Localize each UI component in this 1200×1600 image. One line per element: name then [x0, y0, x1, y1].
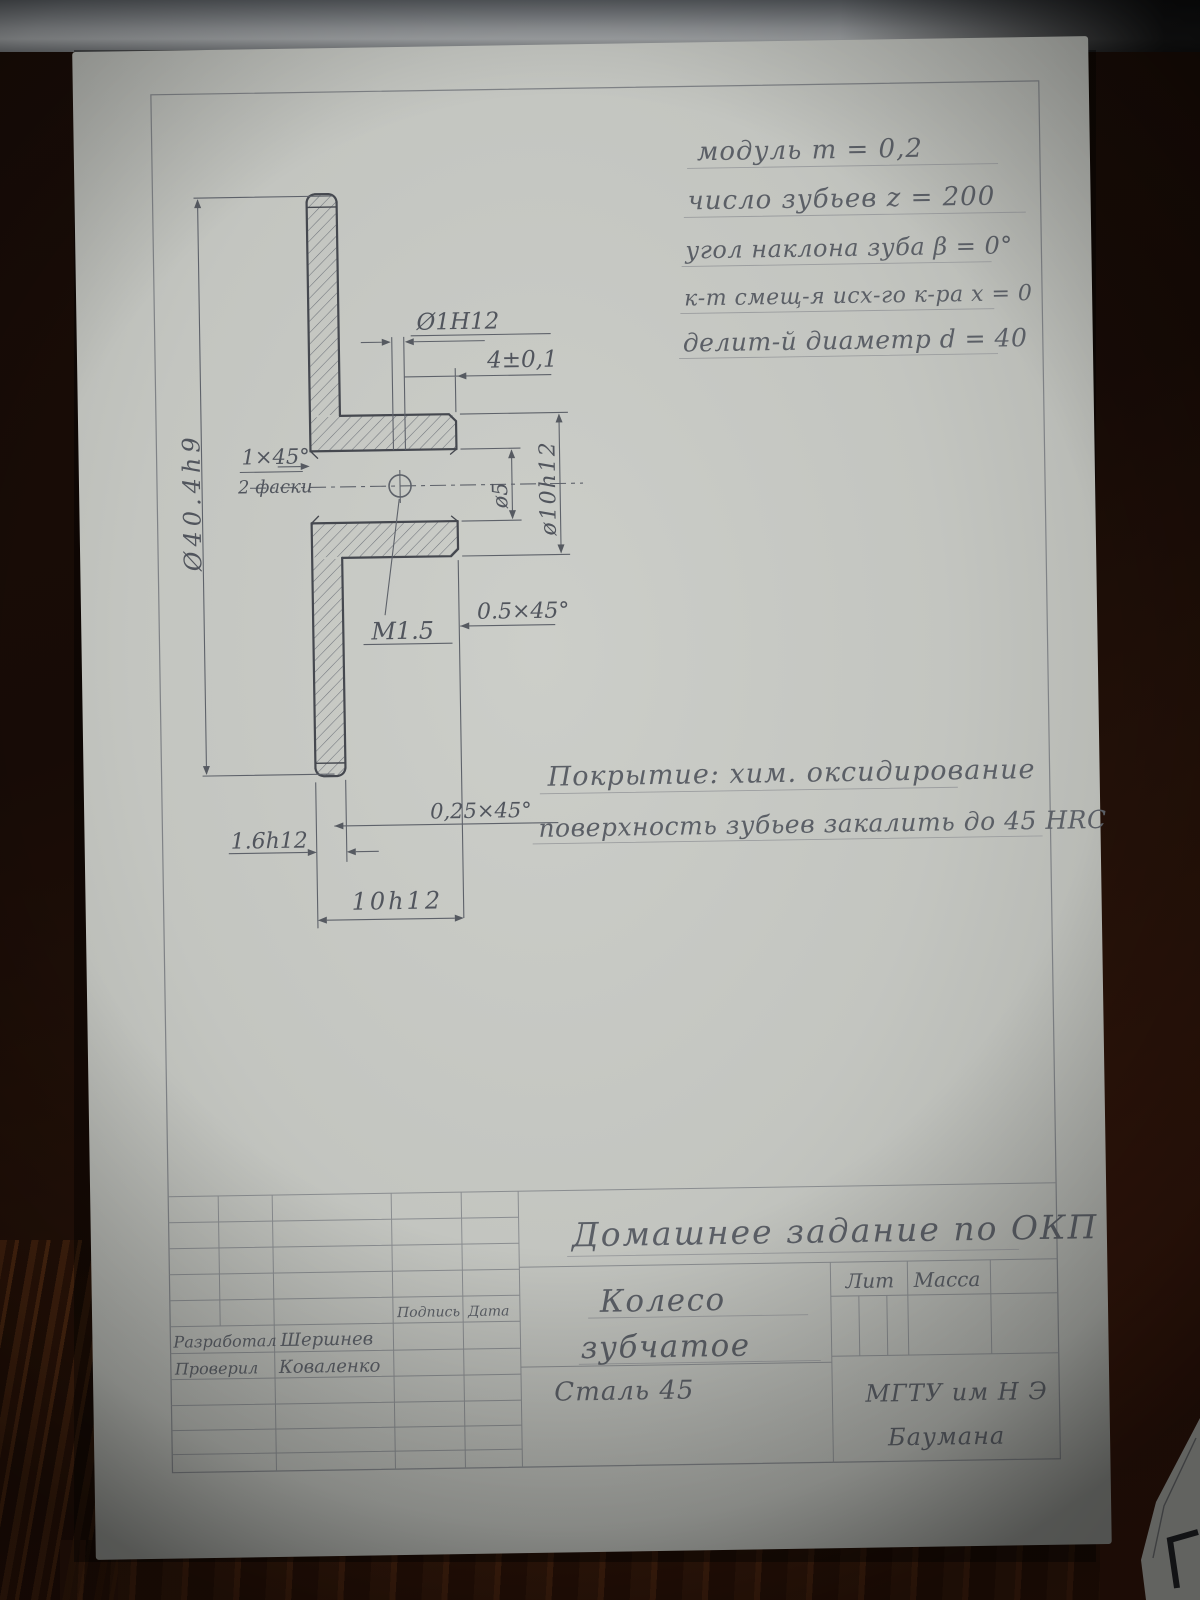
dim-hole-position-label: 4±0,1: [486, 346, 558, 373]
note-teeth: число зубьев z = 200: [687, 182, 995, 217]
developed-label: Разработал: [172, 1331, 276, 1352]
lit-header: Лит: [844, 1268, 894, 1293]
dim-chamfer025-label: 0,25×45°: [430, 798, 532, 824]
dim-chamfer1-label: 1×45°: [241, 444, 310, 469]
developed-name: Шершнев: [279, 1329, 373, 1351]
checked-name: Коваленко: [278, 1355, 381, 1378]
dim-hub-diameter-label: ø10h12: [535, 440, 562, 537]
organization-line1: МГТУ им Н Э: [864, 1377, 1048, 1408]
dim-bore-label: ø5: [488, 482, 512, 509]
dim-disc-thickness-label: 1.6h12: [230, 828, 308, 854]
date-header: Дата: [467, 1303, 510, 1320]
organization-line2: Баумана: [887, 1422, 1006, 1452]
dim-hub-width-label: 10h12: [351, 886, 443, 915]
second-sheet-corner: [1141, 1418, 1200, 1600]
note-angle: угол наклона зуба β = 0°: [684, 231, 1013, 264]
paper-sheet: Ø40.4h9 Ø1H12 4±0,1 ø5: [72, 36, 1118, 1560]
dim-chamfer1-note: 2 фаски: [237, 476, 313, 498]
dim-hole-label: Ø1H12: [415, 308, 499, 335]
checked-label: Проверил: [174, 1358, 259, 1378]
mass-header: Масса: [912, 1267, 980, 1292]
material: Сталь 45: [554, 1375, 695, 1407]
note-module: модуль m = 0,2: [697, 134, 924, 168]
drawing-photo-svg: Ø40.4h9 Ø1H12 4±0,1 ø5: [0, 0, 1200, 1600]
sign-header: Подпись: [396, 1304, 460, 1321]
note-pitch-diameter: делит-й диаметр d = 40: [683, 323, 1028, 357]
dim-chamfer05-label: 0.5×45°: [477, 598, 570, 624]
part-name-line2: зубчатое: [580, 1328, 751, 1367]
dim-thread-label: М1.5: [370, 616, 434, 645]
dim-outer-diameter-label: Ø40.4h9: [177, 432, 207, 572]
photo-scene: Ø40.4h9 Ø1H12 4±0,1 ø5: [0, 0, 1200, 1600]
assignment-title: Домашнее задание по ОКП: [570, 1207, 1099, 1254]
part-name-line1: Колесо: [599, 1282, 726, 1320]
